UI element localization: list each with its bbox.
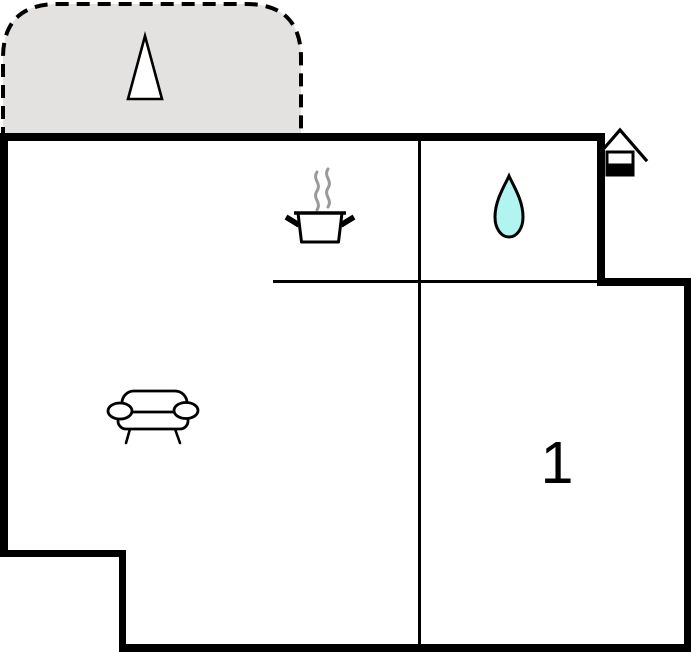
cooking-pot-icon — [283, 165, 358, 250]
pot-handle-right — [341, 217, 354, 225]
steam-line — [316, 172, 319, 210]
pot-body — [298, 213, 342, 242]
water-drop-shape — [495, 176, 523, 237]
floorplan: 1 — [0, 0, 691, 652]
sofa-icon — [103, 386, 203, 448]
sofa-leg-right — [175, 429, 180, 443]
sofa-leg-left — [126, 429, 130, 443]
pot-handle-left — [286, 217, 299, 225]
wall-step-bottom-left — [0, 550, 126, 557]
room-number-label: 1 — [531, 433, 583, 493]
house-door — [607, 164, 633, 176]
interior-wall-vertical — [418, 141, 421, 644]
water-drop-icon — [488, 170, 532, 242]
entrance-house-icon — [596, 125, 654, 183]
wall-top — [0, 133, 605, 141]
wall-step-right — [597, 278, 691, 286]
interior-wall-horizontal — [273, 280, 597, 283]
wall-left — [0, 133, 8, 557]
wall-bottom — [119, 644, 691, 652]
sofa-armrest-right — [174, 403, 198, 419]
steam-line — [327, 169, 330, 207]
wall-step-vertical — [119, 550, 126, 652]
wall-right-lower — [684, 278, 691, 652]
sofa-armrest-left — [108, 403, 132, 419]
terrace-area — [0, 0, 310, 140]
